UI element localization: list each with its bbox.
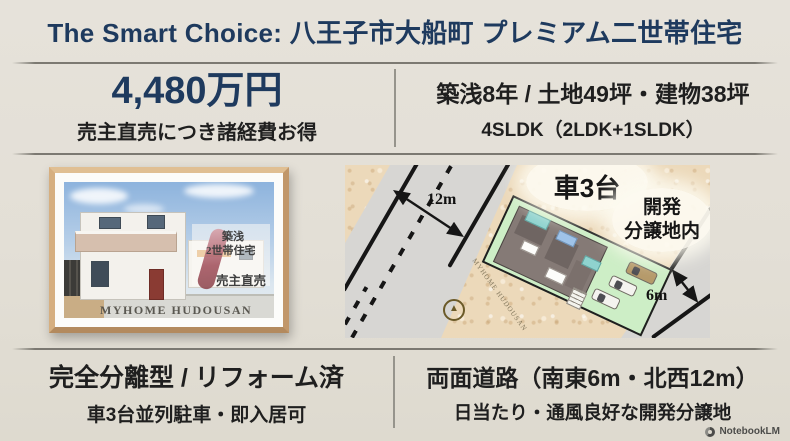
photo-window [99, 217, 121, 229]
development-label-line1: 開発 [643, 196, 681, 220]
header: The Smart Choice: 八王子市大船町 プレミアム二世帯住宅 [0, 0, 790, 62]
parking-label: 車3台 [554, 168, 620, 205]
cloud-shape [184, 184, 254, 198]
photo-balcony [75, 231, 177, 252]
photo-window [147, 215, 165, 229]
notebooklm-logo-icon [705, 427, 715, 437]
price-value: 4,480万円 [111, 71, 282, 113]
infographic-slide: The Smart Choice: 八王子市大船町 プレミアム二世帯住宅 4,4… [0, 0, 790, 441]
page-title: The Smart Choice: 八王子市大船町 プレミアム二世帯住宅 [47, 13, 742, 50]
house-photo: 築浅 2世帯住宅 売主直売 MYHOME HUDOUSAN [64, 182, 274, 318]
price-section: 4,480万円 売主直売につき諸経費お得 [0, 64, 394, 152]
specs-heading: 築浅8年 / 土地49坪・建物38坪 [436, 75, 749, 109]
house-photo-frame: 築浅 2世帯住宅 売主直売 MYHOME HUDOUSAN [49, 167, 289, 333]
photo-badge-type: 2世帯住宅 [206, 242, 256, 258]
price-note: 売主直売につき諸経費お得 [77, 116, 317, 145]
feature-right-heading: 両面道路（南東6m・北西12m） [426, 359, 758, 393]
photo-house-main [80, 212, 186, 300]
feature-left-heading: 完全分離型 / リフォーム済 [49, 358, 344, 394]
divider-horizontal-bottom [12, 348, 778, 350]
compass-icon: ▲ [443, 299, 465, 321]
site-plan-map: MYHOME HUDOUSAN 12m 6m 車3台 開発 分譲地内 ▲ [345, 165, 710, 338]
specs-floor-plan: 4SLDK（2LDK+1SLDK） [481, 115, 704, 142]
notebooklm-watermark: NotebookLM [705, 426, 780, 437]
development-label-line2: 分譲地内 [624, 220, 700, 244]
feature-right-sub: 日当たり・通風良好な開発分譲地 [454, 399, 732, 425]
photo-watermark: MYHOME HUDOUSAN [100, 303, 252, 318]
photo-window [91, 261, 109, 287]
feature-left-sub: 車3台並列駐車・即入居可 [87, 400, 307, 427]
notebooklm-label: NotebookLM [719, 426, 780, 437]
feature-right-section: 両面道路（南東6m・北西12m） 日当たり・通風良好な開発分譲地 [395, 351, 790, 433]
divider-horizontal-middle-top [12, 153, 778, 155]
photo-front-door [149, 269, 164, 300]
road-width-label-6m: 6m [646, 287, 667, 305]
compass-north-arrow: ▲ [449, 304, 459, 314]
feature-left-section: 完全分離型 / リフォーム済 車3台並列駐車・即入居可 [0, 351, 393, 433]
photo-badge-sale: 売主直売 [216, 270, 266, 289]
development-callout: 開発 分譲地内 [612, 188, 710, 252]
specs-section: 築浅8年 / 土地49坪・建物38坪 4SLDK（2LDK+1SLDK） [396, 64, 790, 152]
road-width-label-12m: 12m [427, 191, 456, 209]
cloud-shape [70, 188, 128, 204]
